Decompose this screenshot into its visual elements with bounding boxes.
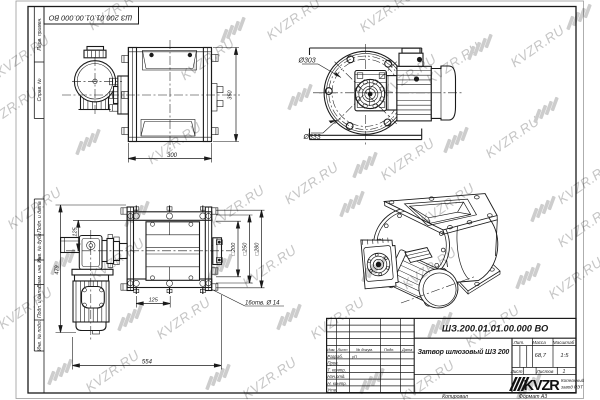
svg-text:Разраб.: Разраб. — [327, 354, 343, 359]
svg-text:Взам. инв. №: Взам. инв. № — [37, 256, 43, 288]
svg-text:Н. контр.: Н. контр. — [327, 381, 346, 386]
svg-text:Лист: Лист — [510, 369, 523, 374]
svg-text:уП: уП — [351, 354, 357, 359]
svg-text:Нач.отд.: Нач.отд. — [327, 374, 345, 379]
svg-text:Инв. № подл.: Инв. № подл. — [37, 320, 43, 351]
svg-text:завод РЭТ: завод РЭТ — [560, 385, 584, 390]
svg-text:Ø303: Ø303 — [298, 58, 316, 65]
svg-text:554: 554 — [142, 359, 153, 365]
svg-text:1: 1 — [563, 369, 566, 375]
svg-text:Формат А3: Формат А3 — [519, 394, 547, 400]
svg-text:□200: □200 — [231, 242, 237, 255]
svg-text:Подп.: Подп. — [384, 347, 394, 352]
svg-text:Ø333: Ø333 — [303, 134, 321, 141]
svg-text:125: 125 — [149, 297, 159, 303]
svg-text:Лист: Лист — [337, 347, 349, 352]
svg-text:1:5: 1:5 — [560, 353, 569, 359]
svg-text:№ докум.: № докум. — [356, 347, 373, 352]
svg-text:68,7: 68,7 — [535, 353, 547, 359]
svg-text:KVZR: KVZR — [524, 378, 561, 394]
svg-text:350: 350 — [228, 89, 234, 99]
svg-text:Утв.: Утв. — [327, 388, 337, 393]
svg-text:Лит.: Лит. — [513, 340, 525, 345]
svg-text:Копельный: Копельный — [561, 377, 585, 383]
svg-text:□280: □280 — [254, 242, 260, 255]
svg-text:Дата: Дата — [401, 347, 413, 352]
svg-text:Затвор шлюзовый ШЗ 200: Затвор шлюзовый ШЗ 200 — [417, 348, 509, 356]
svg-text:Изм.: Изм. — [327, 347, 335, 352]
svg-text:Листов: Листов — [536, 369, 554, 374]
svg-text:Масштаб: Масштаб — [553, 340, 575, 345]
svg-text:Т. контр.: Т. контр. — [327, 368, 346, 373]
svg-text:Масса: Масса — [532, 340, 546, 345]
svg-text:Пров.: Пров. — [327, 361, 338, 366]
svg-text:Копировал: Копировал — [442, 394, 468, 400]
svg-text:125: 125 — [72, 226, 78, 236]
svg-text:16отв. Ø 14: 16отв. Ø 14 — [245, 300, 280, 306]
svg-text:□250: □250 — [242, 242, 248, 255]
